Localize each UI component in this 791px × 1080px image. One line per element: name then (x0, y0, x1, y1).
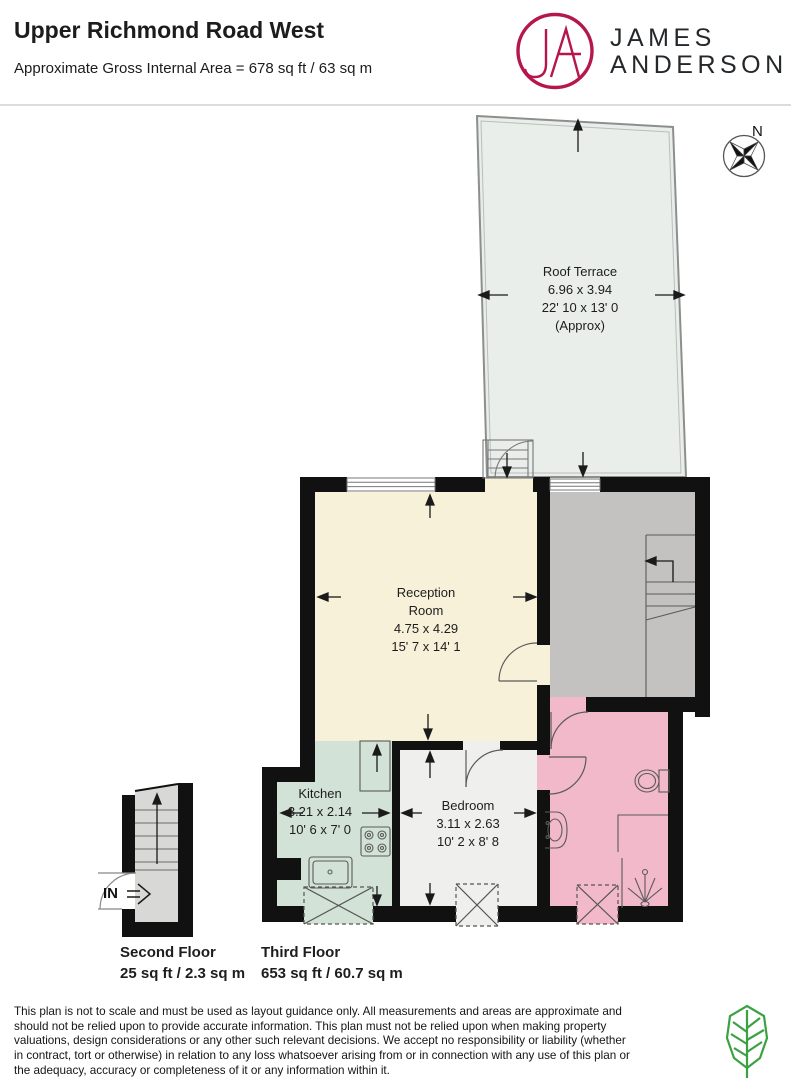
rooflight-marker (456, 884, 498, 926)
page-title: Upper Richmond Road West (14, 17, 324, 44)
room-name: Kitchen (266, 785, 374, 803)
room-dim-imperial: 22' 10 x 13' 0 (490, 299, 670, 317)
compass-north-label: N (752, 123, 763, 140)
room-dim-metric: 6.96 x 3.94 (490, 281, 670, 299)
room-dim-metric: 4.75 x 4.29 (346, 620, 506, 638)
room-dim-imperial: 10' 6 x 7' 0 (266, 821, 374, 839)
room-name: Roof Terrace (490, 263, 670, 281)
rooflight-marker (577, 885, 618, 924)
floor-area: 653 sq ft / 60.7 sq m (261, 963, 403, 984)
floor-area: 25 sq ft / 2.3 sq m (120, 963, 245, 984)
floor-caption-second: Second Floor 25 sq ft / 2.3 sq m (120, 942, 245, 984)
floor-name: Third Floor (261, 942, 403, 963)
room-label-reception: Reception Room 4.75 x 4.29 15' 7 x 14' 1 (346, 584, 506, 656)
floorplan-page: Upper Richmond Road West Approximate Gro… (0, 0, 791, 1080)
floor-caption-third: Third Floor 653 sq ft / 60.7 sq m (261, 942, 403, 984)
room-label-roof-terrace: Roof Terrace 6.96 x 3.94 22' 10 x 13' 0 … (490, 263, 670, 335)
room-label-kitchen: Kitchen 3.21 x 2.14 10' 6 x 7' 0 (266, 785, 374, 839)
brand-name-line1: JAMES (610, 24, 716, 53)
window (347, 478, 435, 491)
bathroom-floor (549, 712, 668, 908)
compass-icon (724, 136, 765, 177)
room-name: Bedroom (398, 797, 538, 815)
header-divider (0, 104, 791, 106)
ja-monogram-icon (518, 15, 592, 88)
room-dim-imperial: 10' 2 x 8' 8 (398, 833, 538, 851)
room-name: Room (346, 602, 506, 620)
room-dim-metric: 3.21 x 2.14 (266, 803, 374, 821)
floor-name: Second Floor (120, 942, 245, 963)
room-name: Reception (346, 584, 506, 602)
area-subtitle: Approximate Gross Internal Area = 678 sq… (14, 60, 372, 77)
disclaimer-text: This plan is not to scale and must be us… (14, 1005, 632, 1079)
floor-plan-canvas (0, 0, 791, 1080)
leaf-logo-icon (727, 1006, 767, 1078)
brand-name-line2: ANDERSON (610, 51, 788, 80)
room-dim-metric: 3.11 x 2.63 (398, 815, 538, 833)
room-dim-note: (Approx) (490, 317, 670, 335)
rooflight-marker (304, 887, 373, 924)
entrance-in-label: IN (103, 885, 118, 902)
room-dim-imperial: 15' 7 x 14' 1 (346, 638, 506, 656)
room-label-bedroom: Bedroom 3.11 x 2.63 10' 2 x 8' 8 (398, 797, 538, 851)
window (550, 479, 600, 490)
